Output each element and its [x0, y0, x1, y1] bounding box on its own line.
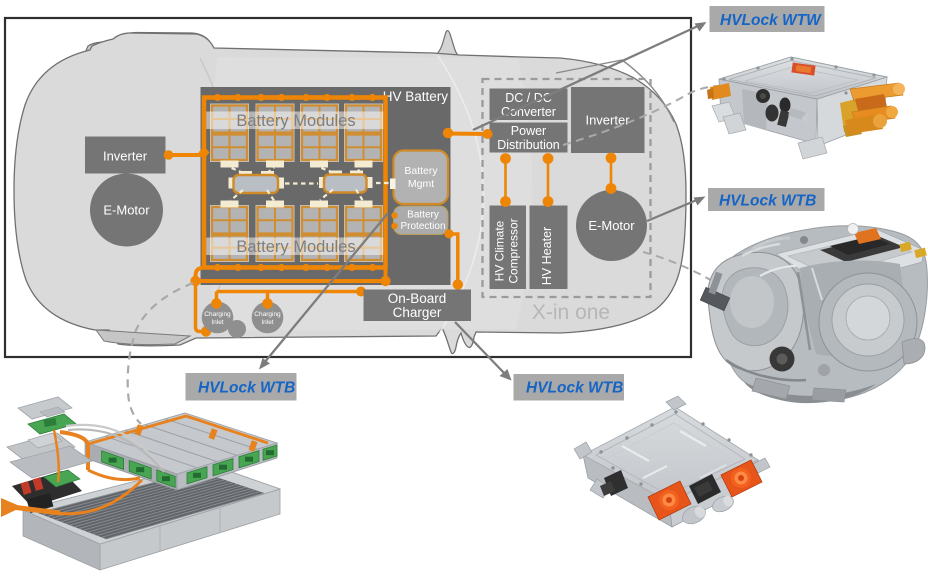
- svg-text:HV Heater: HV Heater: [540, 227, 554, 285]
- svg-text:Protection: Protection: [400, 221, 445, 232]
- svg-text:Battery: Battery: [404, 165, 438, 177]
- svg-text:Battery: Battery: [407, 210, 439, 221]
- svg-text:Compressor: Compressor: [507, 218, 521, 283]
- svg-text:Charger: Charger: [393, 305, 442, 320]
- svg-text:HVLock WTB: HVLock WTB: [526, 380, 623, 397]
- svg-text:On-Board: On-Board: [388, 291, 447, 306]
- svg-text:HVLock WTW: HVLock WTW: [720, 12, 822, 29]
- svg-text:HV Battery: HV Battery: [383, 89, 449, 104]
- svg-text:Distribution: Distribution: [497, 138, 560, 152]
- svg-text:Battery Modules: Battery Modules: [236, 238, 355, 256]
- svg-text:Charging: Charging: [204, 311, 231, 318]
- svg-text:HVLock WTB: HVLock WTB: [198, 380, 295, 397]
- svg-text:Inlet: Inlet: [211, 319, 223, 326]
- svg-text:X-in one: X-in one: [532, 301, 610, 324]
- svg-text:Charging: Charging: [254, 311, 281, 318]
- svg-text:Battery Modules: Battery Modules: [236, 112, 355, 130]
- svg-text:Power: Power: [511, 124, 546, 138]
- svg-text:Mgmt: Mgmt: [408, 178, 434, 190]
- svg-text:Inverter: Inverter: [585, 113, 630, 128]
- svg-text:HV Climate: HV Climate: [493, 220, 507, 281]
- svg-text:E-Motor: E-Motor: [103, 203, 150, 218]
- svg-text:Inverter: Inverter: [103, 149, 148, 164]
- svg-text:E-Motor: E-Motor: [588, 218, 635, 233]
- svg-text:Inlet: Inlet: [261, 319, 273, 326]
- svg-text:HVLock WTB: HVLock WTB: [719, 193, 816, 210]
